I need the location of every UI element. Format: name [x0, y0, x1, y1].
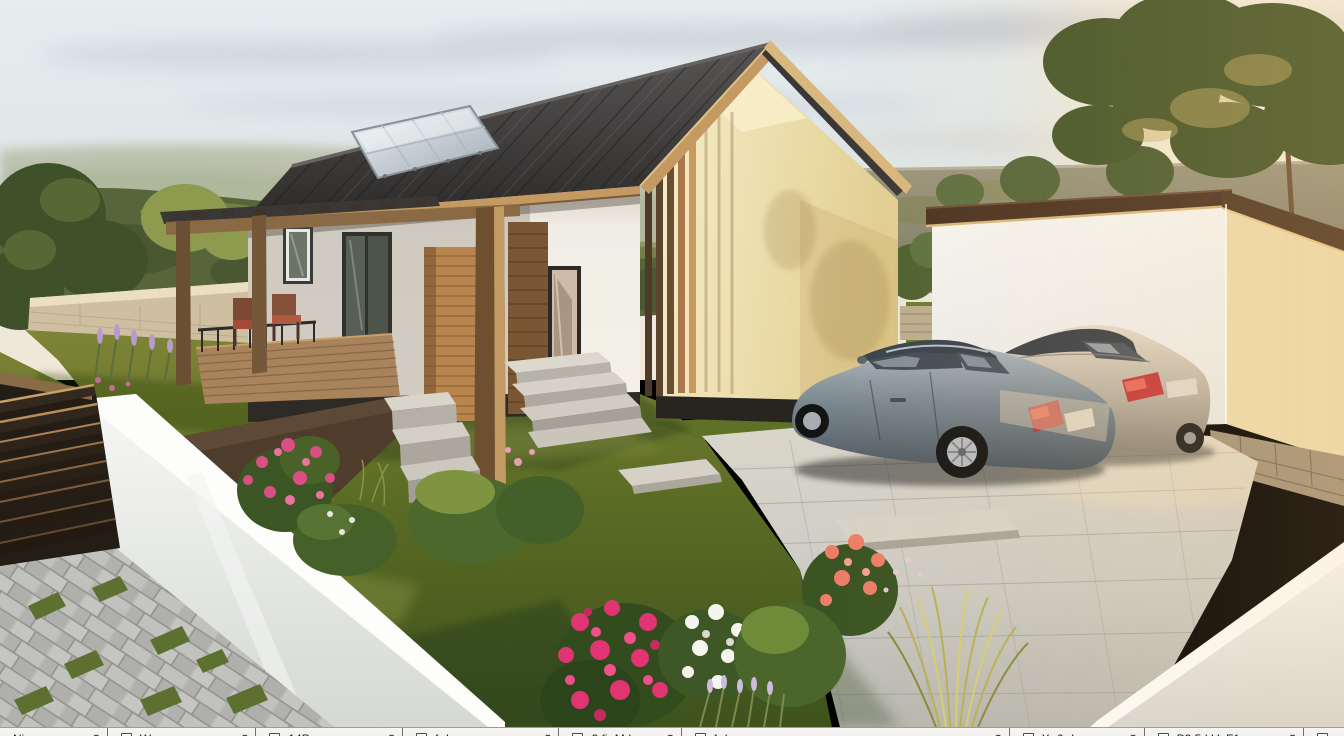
bottom-toolbar: Ni ▾ W ▾ 14P ▾ f- I- ▾ 2 fi- M I- ▾ f- I… [0, 727, 1344, 736]
toolbar-dropdown-label: 2 fi- M I- [591, 732, 635, 736]
chevron-down-icon: ▾ [94, 732, 99, 736]
toolbar-dropdown-3[interactable]: 14P ▾ [256, 728, 403, 736]
render-viewport [0, 0, 1344, 727]
toolbar-dropdown-6[interactable]: f- I- ▾ [682, 728, 1010, 736]
toolbar-dropdown-2[interactable]: W ▾ [108, 728, 257, 736]
toolbar-dropdown-label: Ni [13, 732, 24, 736]
chevron-down-icon: ▾ [242, 732, 247, 736]
sunlight-overlay [820, 0, 1344, 727]
chevron-down-icon: ▾ [996, 732, 1001, 736]
chevron-down-icon: ▾ [1290, 732, 1295, 736]
toolbar-dropdown-4[interactable]: f- I- ▾ [403, 728, 559, 736]
toolbar-dropdown-label: P3 5 I V- F1 [1177, 732, 1240, 736]
toolbar-dropdown-1[interactable]: Ni ▾ [0, 728, 108, 736]
chevron-down-icon: ▾ [545, 732, 550, 736]
toolbar-dropdown-label: f- I- [435, 732, 453, 736]
toolbar-dropdown-8[interactable]: P3 5 I V- F1 ▾ [1145, 728, 1304, 736]
chevron-down-icon: ▾ [389, 732, 394, 736]
shrub-by-wall [293, 504, 397, 576]
chevron-down-icon: ▾ [1131, 732, 1136, 736]
toolbar-dropdown-label: X- 0- I [1042, 732, 1075, 736]
window-left [283, 226, 313, 284]
toolbar-dropdown-label: f- I- [714, 732, 732, 736]
app-window: Ni ▾ W ▾ 14P ▾ f- I- ▾ 2 fi- M I- ▾ f- I… [0, 0, 1344, 736]
toolbar-dropdown-7[interactable]: X- 0- I ▾ [1010, 728, 1145, 736]
toolbar-dropdown-label: 14P [288, 732, 309, 736]
chevron-down-icon: ▾ [668, 732, 673, 736]
toolbar-dropdown-5[interactable]: 2 fi- M I- ▾ [559, 728, 681, 736]
sliding-door [342, 232, 392, 345]
toolbar-dropdown-9[interactable] [1304, 728, 1344, 736]
toolbar-dropdown-label: W [140, 732, 151, 736]
